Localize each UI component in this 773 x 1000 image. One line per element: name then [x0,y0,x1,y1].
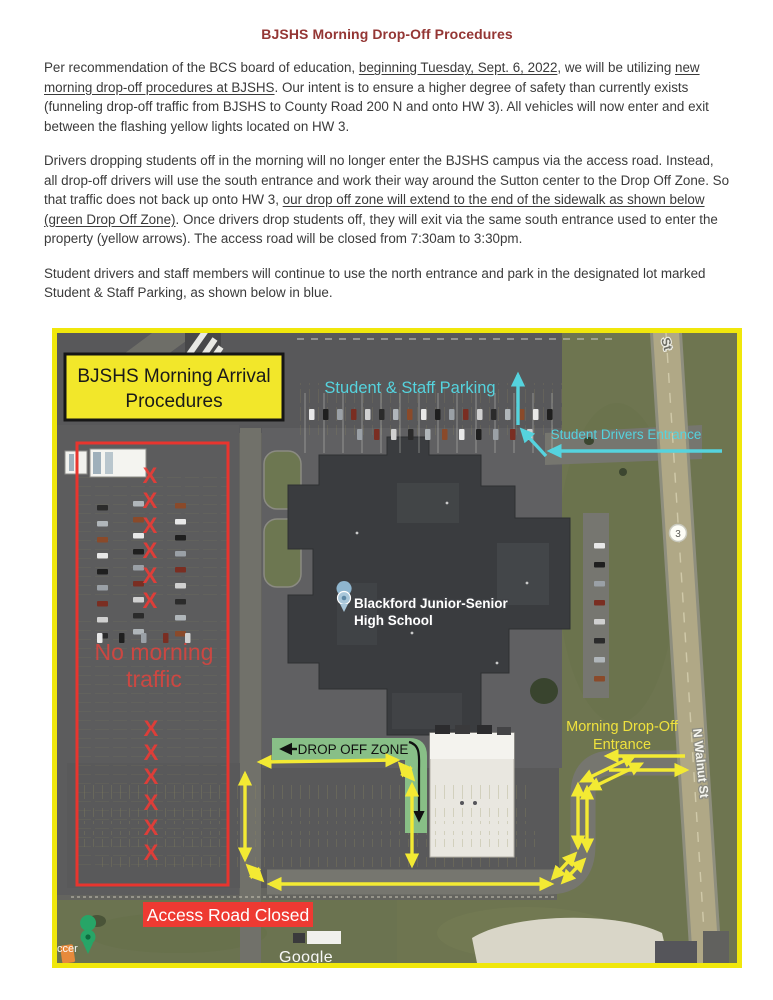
satellite-map: Blackford Junior-Senior High School 3 N … [57,333,737,963]
school-name-line2: High School [354,613,433,628]
morning-dropoff-label-line2: Entrance [593,737,651,753]
drop-off-zone-label: DROP OFF ZONE [298,742,409,757]
red-x-mark: X [144,790,159,815]
body-text: Student drivers and staff members will c… [44,266,705,301]
red-x-mark: X [143,538,158,563]
school-name-line1: Blackford Junior-Senior [354,596,509,611]
body-text: Per recommendation of the BCS board of e… [44,60,359,75]
access-road-closed-label: Access Road Closed [147,905,309,925]
arrival-box-line2: Procedures [125,391,222,412]
body-text: , we will be utilizing [557,60,675,75]
arrival-box-line1: BJSHS Morning Arrival [77,366,270,387]
document-text: BJSHS Morning Drop-Off Procedures Per re… [0,0,773,328]
red-x-mark: X [143,588,158,613]
paragraph-2: Drivers dropping students off in the mor… [44,151,730,249]
red-x-mark: X [143,463,158,488]
no-morning-label-line1: No morning [95,639,214,665]
page-title: BJSHS Morning Drop-Off Procedures [44,26,730,42]
red-x-mark: X [144,840,159,865]
place-label-partial: ccer [57,943,78,955]
paragraph-3: Student drivers and staff members will c… [44,264,730,303]
paragraph-1: Per recommendation of the BCS board of e… [44,58,730,136]
red-x-mark: X [144,764,159,789]
red-x-mark: X [144,716,159,741]
student-drivers-entrance-label: Student Drivers Entrance [551,427,702,442]
campus-map-image: Blackford Junior-Senior High School 3 N … [52,328,742,968]
underlined-text: beginning Tuesday, Sept. 6, 2022 [359,60,558,75]
red-x-mark: X [144,815,159,840]
red-x-mark: X [144,740,159,765]
arrival-procedures-box: BJSHS Morning Arrival Procedures [65,354,283,420]
morning-dropoff-label-line1: Morning Drop-Off [566,719,679,735]
red-x-mark: X [143,488,158,513]
student-staff-parking-label: Student & Staff Parking [324,379,495,397]
red-x-mark: X [143,563,158,588]
route-shield-number: 3 [675,529,681,540]
no-morning-label-line2: traffic [126,666,182,692]
document-page: BJSHS Morning Drop-Off Procedures Per re… [0,0,773,328]
google-watermark: Google [279,949,333,963]
red-x-mark: X [143,513,158,538]
